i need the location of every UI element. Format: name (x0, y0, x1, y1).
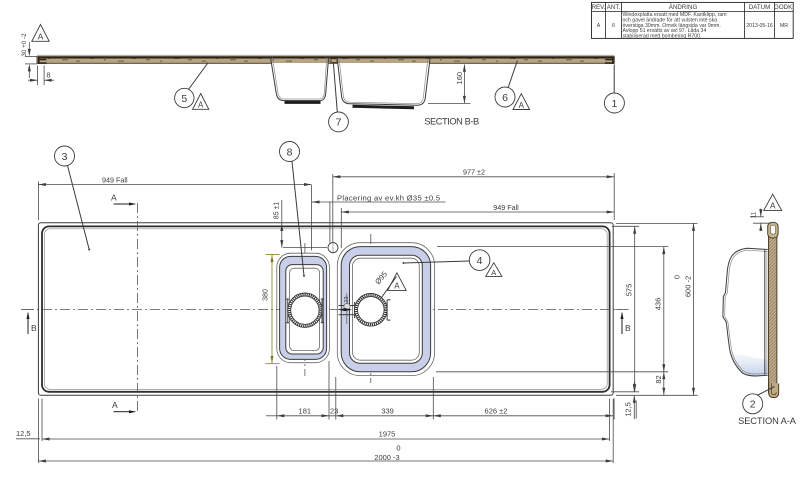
svg-text:1975: 1975 (379, 430, 396, 439)
svg-text:12,5: 12,5 (16, 429, 31, 438)
svg-text:ANT.: ANT. (607, 4, 621, 11)
svg-text:SECTION B-B: SECTION B-B (424, 117, 479, 127)
svg-text:ÄNDRING: ÄNDRING (669, 4, 698, 11)
svg-text:949 Fall: 949 Fall (493, 203, 519, 212)
svg-text:23: 23 (330, 406, 338, 415)
svg-text:A: A (770, 201, 776, 211)
svg-text:0: 0 (396, 444, 400, 453)
svg-text:160: 160 (455, 72, 464, 85)
svg-text:A: A (519, 101, 525, 110)
svg-text:A: A (111, 193, 117, 203)
svg-text:2000 -3: 2000 -3 (374, 453, 399, 462)
svg-text:A: A (491, 268, 496, 277)
svg-text:949 Fall: 949 Fall (102, 175, 128, 184)
svg-text:Placering av ev.kh Ø35 ±0.5: Placering av ev.kh Ø35 ±0.5 (337, 193, 440, 202)
svg-text:1: 1 (611, 98, 617, 110)
svg-text:4: 4 (477, 255, 483, 267)
svg-text:23: 23 (344, 296, 350, 302)
svg-text:2: 2 (750, 399, 756, 411)
svg-text:A: A (597, 23, 601, 29)
svg-text:6: 6 (502, 92, 508, 104)
svg-text:B: B (625, 323, 631, 333)
svg-text:380: 380 (262, 289, 269, 301)
svg-text:A: A (394, 281, 400, 290)
svg-text:A: A (198, 101, 204, 110)
svg-text:575: 575 (625, 284, 634, 297)
svg-text:2013-05-16: 2013-05-16 (746, 23, 773, 29)
svg-text:82: 82 (654, 375, 663, 383)
svg-text:B: B (31, 323, 37, 333)
svg-text:DATUM: DATUM (749, 4, 771, 11)
svg-text:3: 3 (62, 151, 68, 163)
svg-text:A: A (38, 31, 44, 41)
svg-text:8: 8 (287, 146, 293, 158)
svg-text:7: 7 (336, 117, 342, 129)
svg-text:6: 6 (612, 23, 615, 29)
svg-text:339: 339 (381, 406, 394, 415)
svg-text:12,5: 12,5 (624, 402, 633, 417)
svg-text:stabiliserad med bombering R70: stabiliserad med bombering R700. (623, 33, 702, 39)
svg-text:8: 8 (47, 73, 51, 80)
svg-text:600 -2: 600 -2 (684, 276, 693, 297)
svg-text:181: 181 (299, 406, 312, 415)
svg-text:5: 5 (181, 93, 187, 105)
svg-text:626 ±2: 626 ±2 (485, 406, 508, 415)
svg-text:GODK.: GODK. (774, 4, 794, 11)
svg-text:30 +0 -2: 30 +0 -2 (21, 33, 28, 57)
svg-text:MR: MR (780, 23, 788, 29)
svg-text:SECTION A-A: SECTION A-A (738, 416, 797, 426)
svg-text:0: 0 (673, 275, 682, 279)
svg-text:436: 436 (654, 298, 663, 311)
svg-text:977 ±2: 977 ±2 (463, 168, 485, 177)
svg-text:A: A (112, 400, 118, 410)
svg-text:11: 11 (751, 211, 758, 218)
svg-text:85 ±1: 85 ±1 (274, 202, 281, 220)
svg-text:REV.: REV. (592, 4, 606, 11)
